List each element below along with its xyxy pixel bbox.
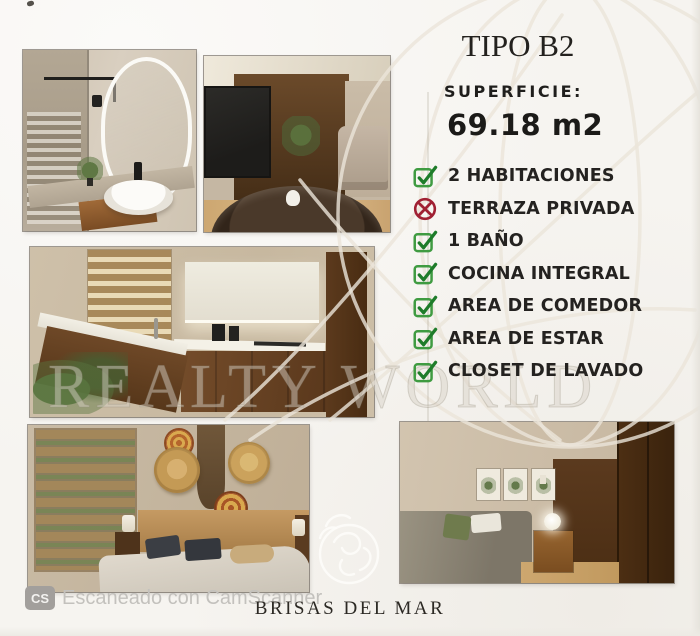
page-edge-shadow [691,0,700,636]
nightstand [115,532,140,555]
feature-label: AREA DE COMEDOR [448,296,642,316]
shower-fixture [44,77,117,80]
ornament-swirl-logo [314,508,384,598]
check-icon [413,326,438,351]
tv-screen [204,86,271,178]
check-icon [413,229,438,254]
sink-faucet [134,162,142,180]
bathroom-plant [77,156,103,180]
photo-bathroom-render [23,50,196,231]
feature-item: CLOSET DE LAVADO [413,355,643,388]
base-cabinets-right [181,351,325,412]
straw-hat-decor [228,442,270,484]
feature-item: AREA DE ESTAR [413,323,643,356]
feature-item: COCINA INTEGRAL [413,258,643,291]
feature-item: AREA DE COMEDOR [413,290,643,323]
shower-head [92,95,102,107]
feature-label: TERRAZA PRIVADA [448,199,635,219]
coffee-maker [212,324,225,341]
pantry-column [326,252,367,417]
check-icon [413,294,438,319]
surface-value: 69.18 m2 [447,108,603,142]
botanical-print [477,469,500,500]
feature-label: CLOSET DE LAVADO [448,361,643,381]
table-kettle [286,190,300,206]
photo-kitchen-render [30,247,374,417]
feature-item: TERRAZA PRIVADA [413,193,643,226]
lounge-plant [282,116,320,164]
feature-label: COCINA INTEGRAL [448,264,630,284]
photo-second-bedroom-render [400,422,674,583]
feature-item: 1 BAÑO [413,225,643,258]
dark-pillow [185,537,222,560]
armchair [338,126,388,189]
features-checklist: 2 HABITACIONES TERRAZA PRIVADA 1 BAÑO CO… [413,160,643,388]
feature-item: 2 HABITACIONES [413,160,643,193]
bedside-lamp [292,519,305,536]
scanned-flyer-page: REALTY WORLD TIPO B2 SUPERFICIE: 69.18 m… [0,0,700,636]
bedside-lamp [122,515,135,532]
feature-label: 2 HABITACIONES [448,166,615,186]
check-icon [413,261,438,286]
vessel-sink [104,180,173,214]
bolster-pillow [230,544,275,564]
feature-label: AREA DE ESTAR [448,329,604,349]
green-leaf-pillow [442,514,471,541]
unit-type-title: TIPO B2 [408,28,628,64]
check-icon [413,164,438,189]
check-icon [413,359,438,384]
cross-icon [413,196,438,221]
scan-speck [26,0,34,7]
globe-lamp [544,513,561,530]
wardrobe [617,422,674,583]
surface-label: SUPERFICIE: [444,82,583,101]
photo-tv-lounge-render [204,56,390,232]
project-name: BRISAS DEL MAR [0,598,700,620]
photo-main-bedroom-render [28,425,309,592]
nightstand [534,531,572,571]
straw-hat-decor [154,447,200,493]
white-pillow [471,512,502,533]
botanical-print [504,469,527,500]
kitchen-faucet [154,318,158,339]
botanical-print [532,469,555,500]
page-edge-shadow [0,627,700,636]
light-switch [540,475,546,484]
kitchen-plant [33,352,128,414]
upper-cabinets [185,262,319,323]
feature-label: 1 BAÑO [448,231,524,251]
